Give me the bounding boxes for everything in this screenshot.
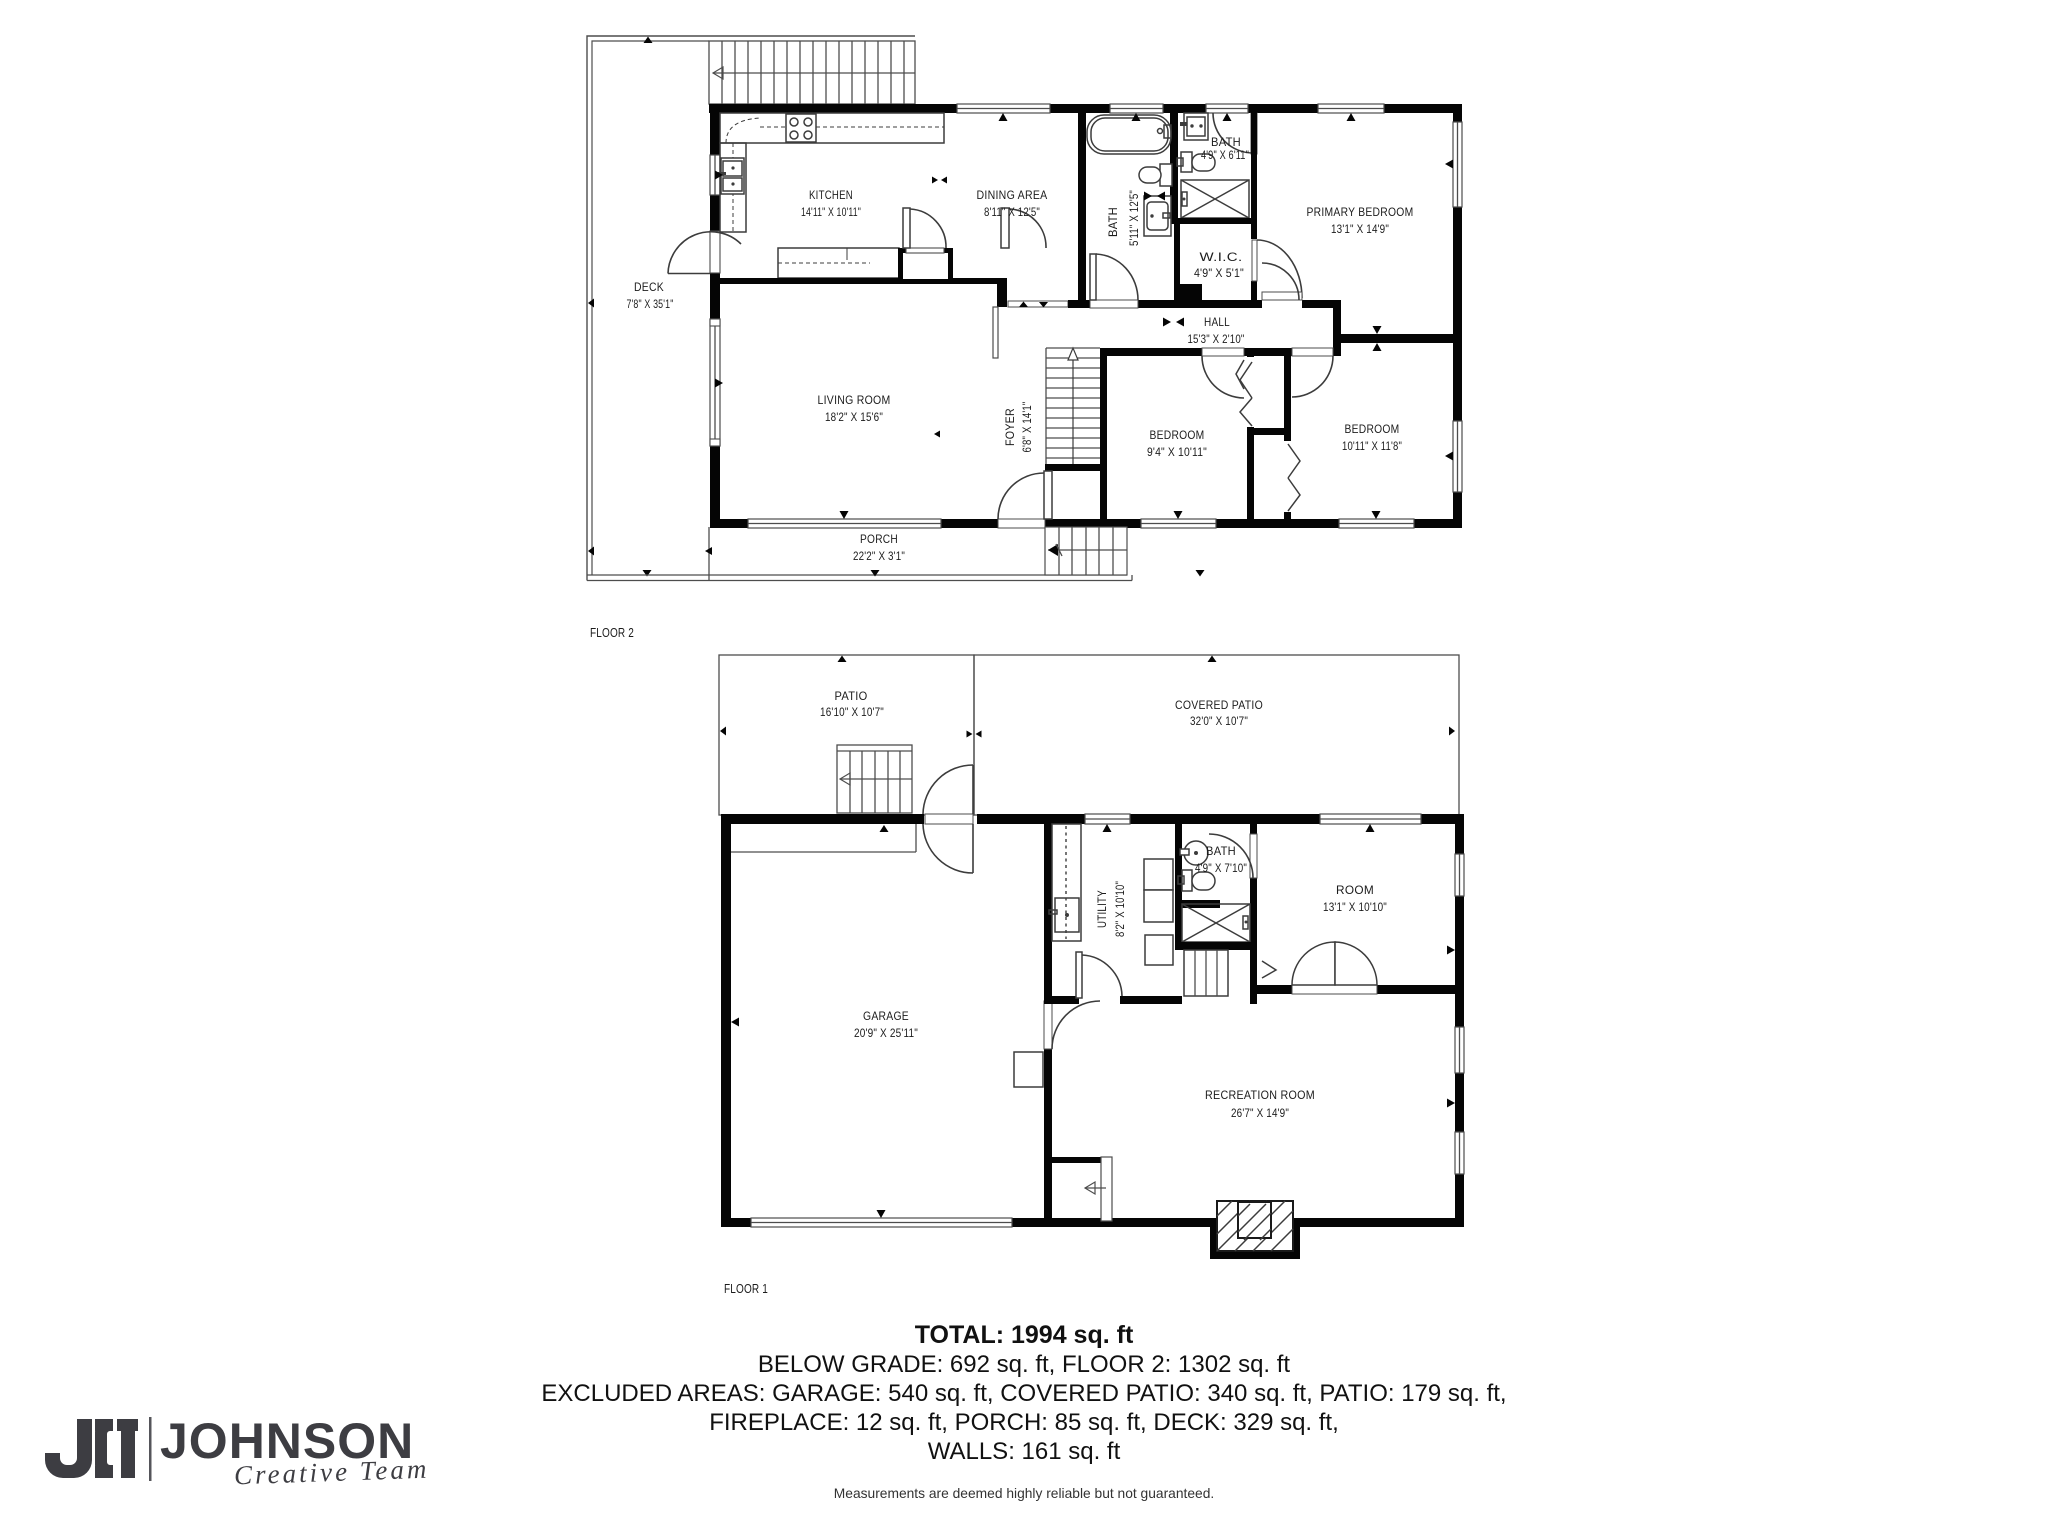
svg-text:RECREATION ROOM: RECREATION ROOM — [1205, 1088, 1315, 1102]
svg-text:8'2" X 10'10": 8'2" X 10'10" — [1114, 881, 1127, 937]
svg-text:EXCLUDED AREAS: GARAGE: 540 sq: EXCLUDED AREAS: GARAGE: 540 sq. ft, COVE… — [541, 1380, 1506, 1407]
svg-text:FLOOR 2: FLOOR 2 — [590, 625, 634, 640]
svg-text:GARAGE: GARAGE — [863, 1009, 909, 1023]
svg-text:FOYER: FOYER — [1003, 408, 1017, 446]
svg-text:10'11" X 11'8": 10'11" X 11'8" — [1342, 440, 1402, 453]
svg-text:4'9" X 6'11": 4'9" X 6'11" — [1201, 149, 1249, 162]
svg-text:LIVING ROOM: LIVING ROOM — [818, 393, 891, 407]
svg-text:5'11" X 12'5": 5'11" X 12'5" — [1128, 190, 1141, 246]
svg-text:Creative Team: Creative Team — [234, 1454, 430, 1491]
svg-text:4'9" X 5'1": 4'9" X 5'1" — [1194, 267, 1244, 280]
svg-text:HALL: HALL — [1204, 315, 1230, 329]
svg-text:BATH: BATH — [1211, 135, 1241, 149]
svg-text:KITCHEN: KITCHEN — [809, 188, 853, 202]
svg-text:13'1" X 14'9": 13'1" X 14'9" — [1331, 223, 1389, 236]
svg-text:20'9" X 25'11": 20'9" X 25'11" — [854, 1027, 918, 1040]
svg-text:PORCH: PORCH — [860, 532, 898, 546]
svg-text:PATIO: PATIO — [835, 689, 868, 703]
svg-text:BATH: BATH — [1106, 207, 1120, 237]
svg-text:6'8" X 14'1": 6'8" X 14'1" — [1021, 402, 1034, 453]
svg-text:DINING AREA: DINING AREA — [977, 188, 1048, 202]
svg-text:W.I.C.: W.I.C. — [1200, 250, 1243, 264]
svg-text:TOTAL: 1994 sq. ft: TOTAL: 1994 sq. ft — [915, 1321, 1134, 1349]
svg-text:14'11" X 10'11": 14'11" X 10'11" — [801, 206, 861, 219]
svg-text:ROOM: ROOM — [1336, 883, 1374, 897]
svg-text:FLOOR 1: FLOOR 1 — [724, 1281, 768, 1296]
svg-text:BEDROOM: BEDROOM — [1345, 422, 1400, 436]
svg-text:4'9" X 7'10": 4'9" X 7'10" — [1195, 862, 1247, 875]
svg-text:7'8" X 35'1": 7'8" X 35'1" — [627, 298, 674, 311]
svg-text:22'2" X 3'1": 22'2" X 3'1" — [853, 550, 905, 563]
svg-text:UTILITY: UTILITY — [1095, 890, 1109, 928]
svg-text:DECK: DECK — [634, 280, 664, 294]
svg-text:26'7" X 14'9": 26'7" X 14'9" — [1231, 1107, 1289, 1120]
svg-text:BATH: BATH — [1206, 844, 1236, 858]
svg-text:13'1" X 10'10": 13'1" X 10'10" — [1323, 901, 1387, 914]
svg-text:16'10" X 10'7": 16'10" X 10'7" — [820, 706, 884, 719]
svg-text:8'11" X 12'5": 8'11" X 12'5" — [984, 206, 1040, 219]
svg-text:9'4" X 10'11": 9'4" X 10'11" — [1147, 446, 1207, 459]
svg-text:FIREPLACE: 12 sq. ft, PORCH: 8: FIREPLACE: 12 sq. ft, PORCH: 85 sq. ft, … — [709, 1409, 1339, 1436]
svg-text:BELOW GRADE: 692 sq. ft, FLOOR: BELOW GRADE: 692 sq. ft, FLOOR 2: 1302 s… — [758, 1351, 1291, 1378]
svg-text:15'3" X 2'10": 15'3" X 2'10" — [1188, 333, 1245, 346]
svg-text:PRIMARY BEDROOM: PRIMARY BEDROOM — [1307, 205, 1414, 219]
svg-text:COVERED PATIO: COVERED PATIO — [1175, 698, 1263, 712]
svg-text:BEDROOM: BEDROOM — [1150, 428, 1205, 442]
svg-text:WALLS: 161 sq. ft: WALLS: 161 sq. ft — [928, 1438, 1121, 1465]
svg-text:Measurements are deemed highly: Measurements are deemed highly reliable … — [834, 1486, 1214, 1501]
svg-text:18'2" X 15'6": 18'2" X 15'6" — [825, 411, 883, 424]
svg-text:32'0" X 10'7": 32'0" X 10'7" — [1190, 715, 1248, 728]
